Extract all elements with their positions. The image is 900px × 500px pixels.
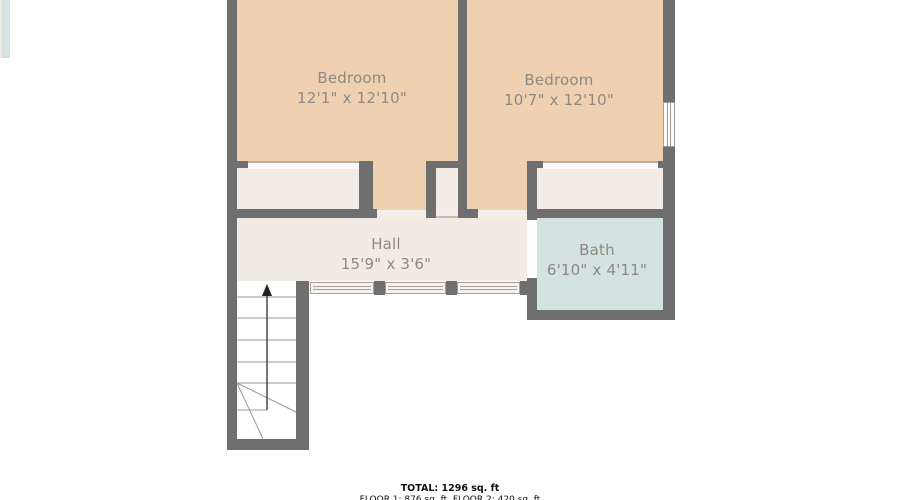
floor-areas-text: FLOOR 1: 876 sq. ft FLOOR 2: 420 sq. ft [0,495,900,500]
room-name: Bedroom [449,70,669,90]
closet-right-door-opening [543,161,658,169]
stairs-icon [237,281,296,439]
wall-closet-right-end-stub [658,161,663,168]
bedroom-1-doorway-floor [373,161,426,209]
room-dimensions: 15'9" x 3'6" [276,254,496,274]
room-name: Bedroom [242,68,462,88]
room-name: Hall [276,234,496,254]
closet-left-door-opening [248,161,359,169]
bedroom-1-label: Bedroom 12'1" x 12'10" [242,68,462,108]
railing-post [446,281,457,295]
wall-left-exterior [227,0,237,450]
wall-hall-top-stub [458,209,478,218]
floor-plan-canvas: Bedroom 12'1" x 12'10" Bedroom 10'7" x 1… [0,0,900,500]
total-area-text: TOTAL: 1296 sq. ft [0,483,900,494]
bedroom-2-label: Bedroom 10'7" x 12'10" [449,70,669,110]
wall-stairwell-bottom [227,439,309,450]
wall-closet-left-stub [237,161,248,168]
wall-bath-bottom [527,310,675,320]
railing-segment [310,282,374,294]
bath-label: Bath 6'10" x 4'11" [487,240,707,280]
stairs-up-arrow-icon [262,284,272,410]
wall-hall-top [227,209,377,218]
wall-bath-left-upper [527,161,537,220]
bedroom-2-door-opening [478,209,527,218]
railing-end-block [520,281,527,295]
closet-middle-floor [436,161,458,209]
room-dimensions: 6'10" x 4'11" [487,260,707,280]
wall-stairwell-right [296,281,309,439]
bedroom-2-doorway-floor [467,161,527,209]
bedroom-1-door-opening [377,209,426,218]
closet-middle-door-opening [436,209,458,218]
railing-post [374,281,385,295]
bath-door-opening [0,0,10,58]
wall-bath-top [527,209,675,218]
room-name: Bath [487,240,707,260]
railing-segment [385,282,446,294]
room-dimensions: 10'7" x 12'10" [449,90,669,110]
wall-closet-middle-side [426,161,436,218]
railing-segment [457,282,520,294]
hall-label: Hall 15'9" x 3'6" [276,234,496,274]
room-dimensions: 12'1" x 12'10" [242,88,462,108]
